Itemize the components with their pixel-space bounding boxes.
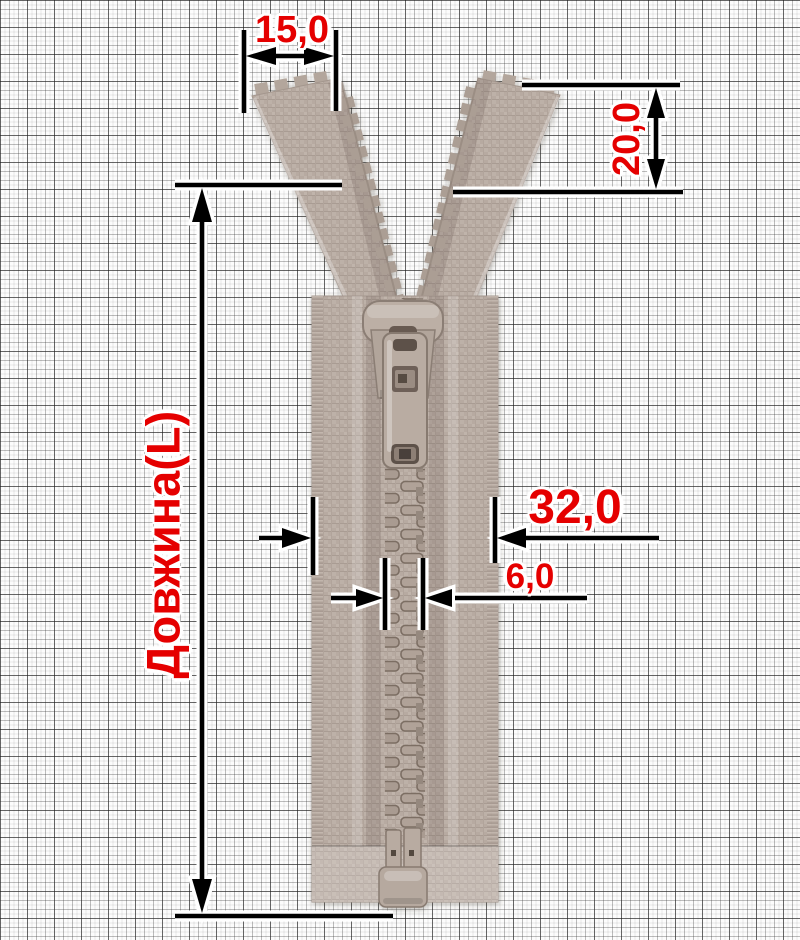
zipper-left-tape (252, 78, 398, 316)
zipper-right-tape (420, 78, 560, 318)
dimension-label-length: Довжина(L) (140, 417, 187, 679)
dimension-label-open-top-height: 20,0 (608, 93, 646, 185)
zipper-photo (252, 78, 560, 907)
graph-paper-canvas: 15,0 20,0 Довжина(L) 32,0 6,0 (0, 0, 800, 940)
zipper-pull-tab (383, 333, 427, 468)
dimension-label-tape-width: 32,0 (524, 484, 626, 532)
dimension-label-top-tape-width: 15,0 (250, 11, 334, 49)
zipper-illustration (0, 0, 800, 940)
dimension-label-teeth-width: 6,0 (502, 559, 558, 594)
